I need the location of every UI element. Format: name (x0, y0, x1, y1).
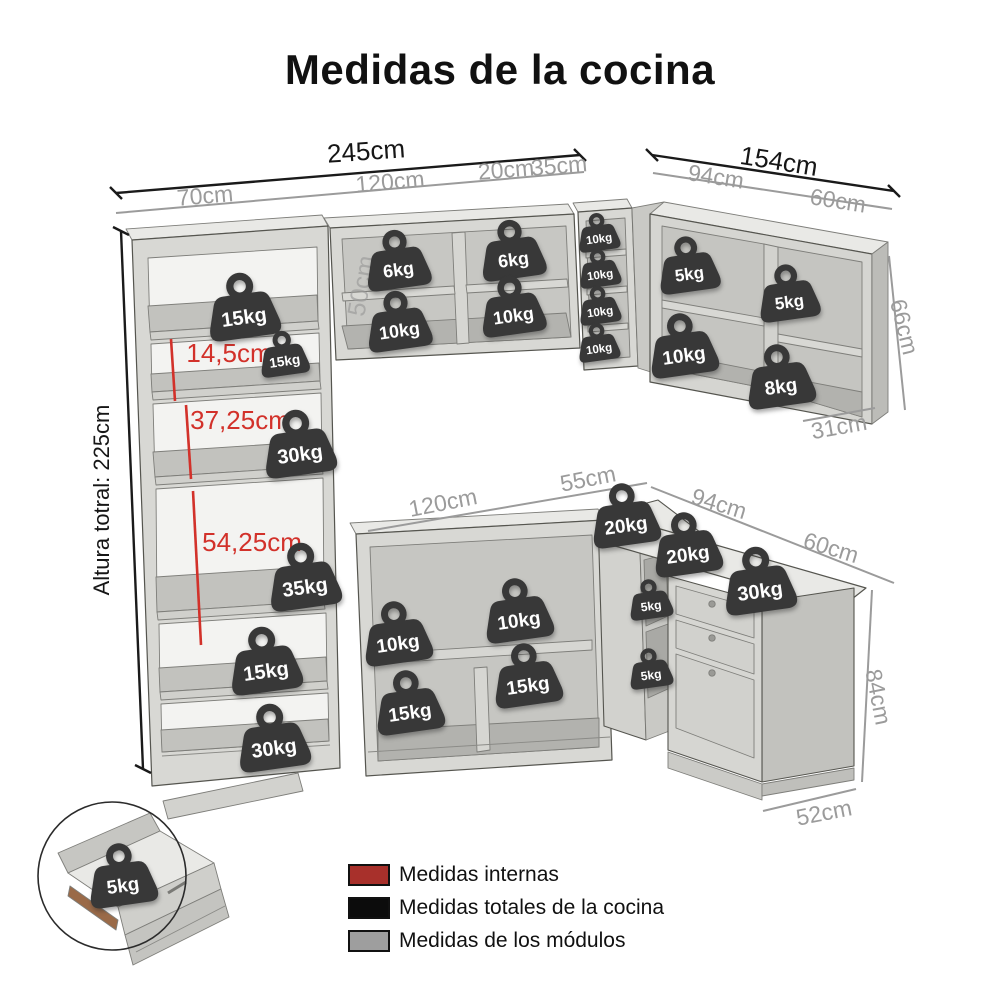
kitchen-illustration (0, 0, 1000, 1000)
legend-label: Medidas de los módulos (399, 929, 625, 953)
legend-label: Medidas internas (399, 863, 559, 887)
legend-item: Medidas internas (348, 861, 664, 889)
wall-cabinet-right-run (632, 202, 888, 424)
legend: Medidas internasMedidas totales de la co… (348, 861, 664, 955)
narrow-shelf-column (573, 199, 638, 370)
detail-drawer-view (38, 773, 303, 965)
legend-swatch (348, 930, 390, 952)
legend-swatch (348, 864, 390, 886)
wall-cabinet-middle (324, 204, 580, 360)
legend-item: Medidas totales de la cocina (348, 894, 664, 922)
kitchen-measurements-diagram: Medidas de la cocina (0, 0, 1000, 1000)
base-cabinet-middle (350, 509, 612, 776)
legend-item: Medidas de los módulos (348, 927, 664, 955)
legend-label: Medidas totales de la cocina (399, 896, 664, 920)
tall-cabinet (126, 215, 340, 786)
legend-swatch (348, 897, 390, 919)
